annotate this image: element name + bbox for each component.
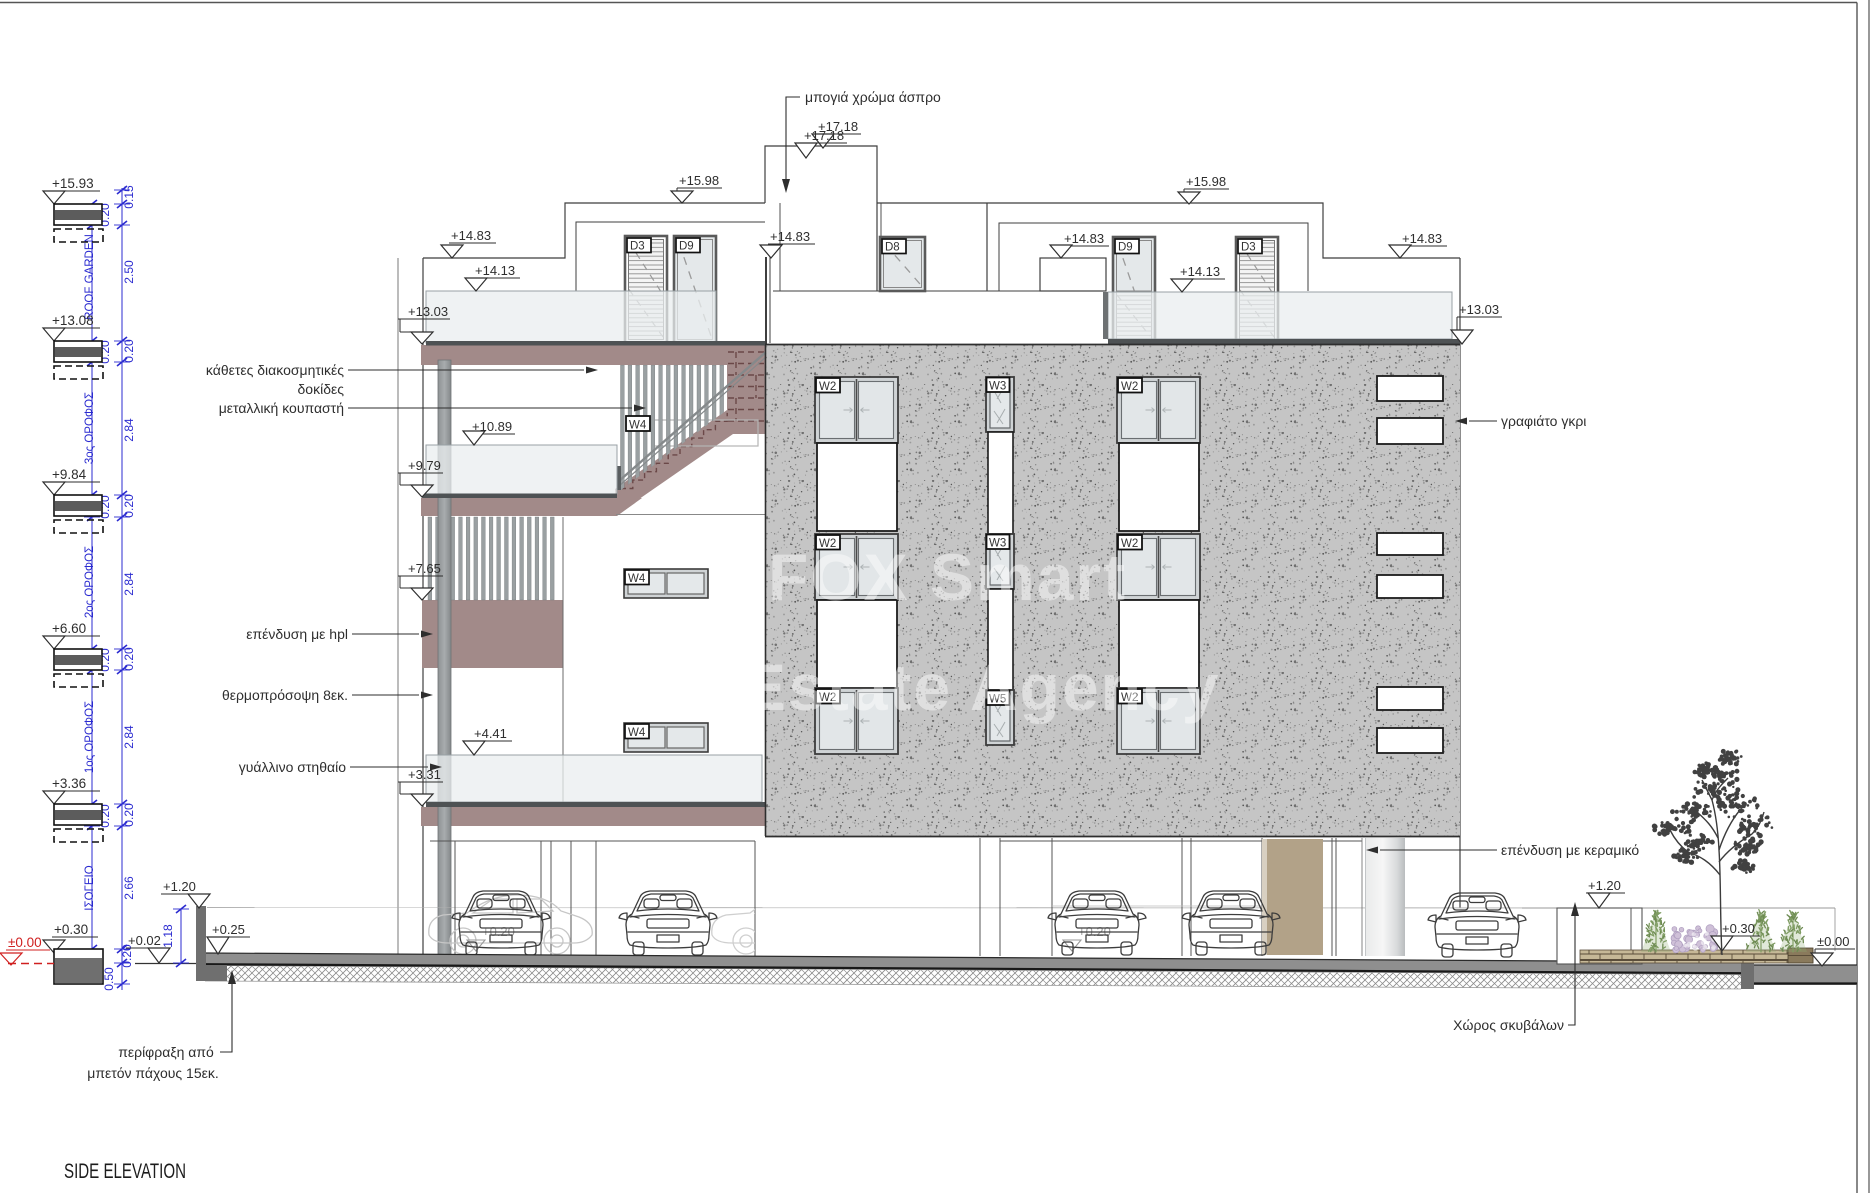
- svg-text:0.50: 0.50: [102, 967, 116, 991]
- svg-text:μεταλλική κουπαστή: μεταλλική κουπαστή: [219, 400, 344, 416]
- svg-text:D3: D3: [630, 241, 645, 253]
- svg-text:±0.00: ±0.00: [8, 935, 42, 950]
- svg-text:+15.93: +15.93: [52, 176, 94, 191]
- svg-text:+4.41: +4.41: [474, 726, 507, 741]
- svg-text:0.20: 0.20: [122, 647, 136, 671]
- svg-text:1ος ΟΡΟΦΟΣ: 1ος ΟΡΟΦΟΣ: [84, 701, 96, 773]
- svg-text:W2: W2: [819, 381, 836, 393]
- svg-text:+0.30: +0.30: [54, 922, 88, 937]
- svg-text:περίφραξη από: περίφραξη από: [118, 1044, 214, 1060]
- svg-text:+15.98: +15.98: [1186, 174, 1226, 189]
- svg-text:3ος ΟΡΟΦΟΣ: 3ος ΟΡΟΦΟΣ: [84, 392, 96, 464]
- svg-text:2.84: 2.84: [122, 572, 136, 596]
- svg-text:0.20: 0.20: [122, 494, 136, 518]
- svg-text:D9: D9: [679, 241, 694, 253]
- svg-text:W3: W3: [989, 381, 1006, 393]
- svg-text:ΙΣΟΓΕΙΟ: ΙΣΟΓΕΙΟ: [84, 865, 96, 910]
- svg-text:2.84: 2.84: [122, 725, 136, 749]
- svg-text:0.15: 0.15: [122, 185, 136, 209]
- svg-text:+9.79: +9.79: [408, 458, 441, 473]
- svg-text:γυάλλινο στηθαίο: γυάλλινο στηθαίο: [239, 759, 346, 775]
- svg-text:+3.36: +3.36: [52, 776, 86, 791]
- svg-text:+9.84: +9.84: [52, 467, 87, 482]
- svg-text:+6.60: +6.60: [52, 621, 86, 636]
- svg-text:+3.31: +3.31: [408, 767, 441, 782]
- svg-text:+1.20: +1.20: [163, 879, 196, 894]
- svg-text:2.50: 2.50: [122, 260, 136, 284]
- svg-text:+17.18: +17.18: [804, 128, 844, 143]
- svg-text:+13.03: +13.03: [1459, 302, 1499, 317]
- svg-text:±0.00: ±0.00: [1817, 934, 1849, 949]
- svg-text:Estate Agency: Estate Agency: [742, 650, 1220, 724]
- svg-text:+1.20: +1.20: [1588, 878, 1621, 893]
- svg-text:2.84: 2.84: [122, 418, 136, 442]
- svg-text:W4: W4: [628, 573, 646, 585]
- svg-text:επένδυση με hpl: επένδυση με hpl: [246, 626, 348, 642]
- svg-text:+15.98: +15.98: [679, 173, 719, 188]
- svg-text:+14.83: +14.83: [770, 229, 810, 244]
- svg-text:D9: D9: [1118, 242, 1133, 254]
- svg-text:+14.13: +14.13: [475, 263, 515, 278]
- svg-text:+0.25: +0.25: [212, 922, 245, 937]
- svg-text:δοκίδες: δοκίδες: [298, 381, 345, 397]
- svg-text:2.66: 2.66: [122, 876, 136, 900]
- svg-text:γραφιάτο γκρι: γραφιάτο γκρι: [1501, 413, 1586, 429]
- svg-text:2ος ΟΡΟΦΟΣ: 2ος ΟΡΟΦΟΣ: [84, 546, 96, 618]
- svg-text:1.18: 1.18: [161, 924, 175, 948]
- svg-text:μπετόν πάχους 15εκ.: μπετόν πάχους 15εκ.: [87, 1065, 218, 1081]
- svg-text:W4: W4: [628, 727, 646, 739]
- svg-text:D8: D8: [885, 242, 900, 254]
- svg-text:+14.83: +14.83: [1064, 231, 1104, 246]
- svg-text:FOX Smart: FOX Smart: [768, 540, 1127, 614]
- svg-text:W2: W2: [1121, 381, 1138, 393]
- svg-text:D3: D3: [1241, 242, 1256, 254]
- svg-text:+7.65: +7.65: [408, 561, 441, 576]
- svg-text:μπογιά χρώμα άσπρο: μπογιά χρώμα άσπρο: [805, 89, 941, 105]
- svg-text:+14.83: +14.83: [451, 228, 491, 243]
- svg-text:+0.02: +0.02: [128, 933, 161, 948]
- svg-text:0.20: 0.20: [122, 803, 136, 827]
- svg-text:θερμοπρόσοψη 8εκ.: θερμοπρόσοψη 8εκ.: [222, 687, 348, 703]
- svg-text:0.20: 0.20: [122, 339, 136, 363]
- svg-text:κάθετες διακοσμητικές: κάθετες διακοσμητικές: [206, 362, 344, 378]
- svg-text:ROOF GARDEN: ROOF GARDEN: [84, 234, 96, 320]
- svg-text:+0.30: +0.30: [1722, 921, 1755, 936]
- svg-text:+14.13: +14.13: [1180, 264, 1220, 279]
- svg-text:επένδυση με κεραμικό: επένδυση με κεραμικό: [1501, 842, 1639, 858]
- svg-text:SIDE ELEVATION: SIDE ELEVATION: [64, 1160, 186, 1183]
- svg-text:+13.03: +13.03: [408, 304, 448, 319]
- svg-text:+14.83: +14.83: [1402, 231, 1442, 246]
- svg-text:Χώρος σκυβάλων: Χώρος σκυβάλων: [1453, 1017, 1564, 1033]
- svg-text:W4: W4: [629, 420, 647, 432]
- svg-text:+13.08: +13.08: [52, 313, 94, 328]
